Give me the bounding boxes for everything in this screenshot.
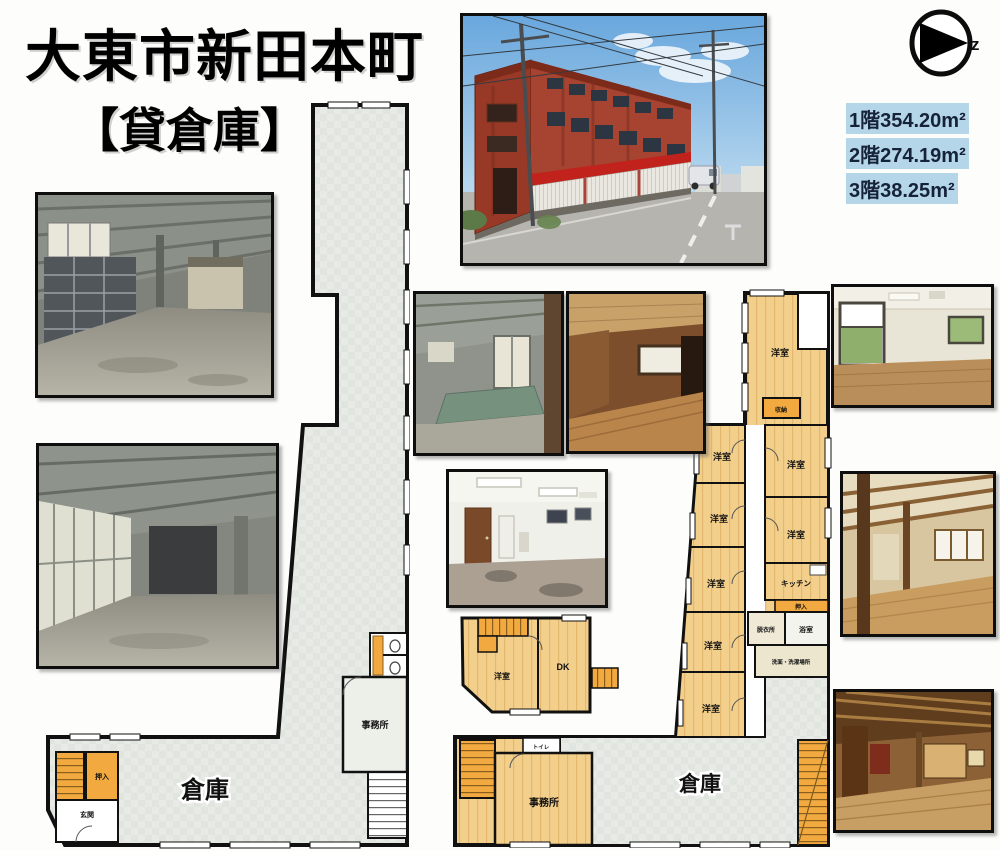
room-label-office-2f: 事務所 bbox=[529, 796, 559, 809]
photo-office-room bbox=[446, 469, 608, 608]
photo-warehouse-interior-3 bbox=[413, 291, 564, 456]
plan-1f-entry-block: 押入 玄関 bbox=[56, 752, 118, 842]
photo-exterior-building bbox=[460, 13, 767, 266]
north-arrow-icon: z bbox=[908, 6, 982, 82]
room-label-western-2: 洋室 bbox=[713, 451, 731, 462]
room-label-dk: DK bbox=[557, 662, 570, 672]
room-label-entrance: 玄関 bbox=[80, 810, 94, 819]
photo-wood-room bbox=[566, 291, 706, 454]
photo-warehouse-interior-1 bbox=[35, 192, 274, 398]
room-label-storage: 収納 bbox=[775, 406, 787, 414]
room-label-laundry: 洗面・洗濯場所 bbox=[772, 658, 811, 666]
plan-1f-toilet-block bbox=[370, 633, 407, 678]
floor-area-1f: 1階354.20m² bbox=[846, 103, 969, 134]
room-label-bath: 浴室 bbox=[799, 625, 813, 634]
photo-room-2f-a bbox=[831, 284, 994, 408]
plan-3f-stairs bbox=[478, 618, 528, 636]
photo-warehouse-interior-2 bbox=[36, 443, 279, 669]
floor-area-list: 1階354.20m² 2階274.19m² 3階38.25m² bbox=[846, 103, 969, 208]
room-label-kitchen: キッチン bbox=[781, 579, 811, 588]
room-label-western-7: 洋室 bbox=[787, 459, 805, 470]
room-label-warehouse-2f: 倉庫 bbox=[678, 772, 721, 796]
floor-area-2f: 2階274.19m² bbox=[846, 138, 969, 169]
room-label-warehouse-1f: 倉庫 bbox=[180, 776, 229, 804]
room-label-western-3: 洋室 bbox=[710, 513, 728, 524]
plan-1f-stairs-right bbox=[368, 772, 407, 838]
room-label-closet-1f: 押入 bbox=[95, 772, 109, 781]
plan-2f-corridor bbox=[745, 425, 765, 737]
room-label-closet-2f: 押入 bbox=[795, 603, 807, 611]
room-label-office-1f: 事務所 bbox=[361, 719, 388, 730]
plan-3f-ext-stairs bbox=[592, 668, 618, 688]
north-letter: z bbox=[971, 35, 980, 54]
floor-plan-3f: 洋室 DK bbox=[450, 608, 625, 720]
room-label-dressing: 脱衣所 bbox=[757, 626, 775, 634]
room-label-western-8: 洋室 bbox=[787, 529, 805, 540]
room-label-western-6: 洋室 bbox=[702, 703, 720, 714]
room-label-western-5: 洋室 bbox=[704, 640, 722, 651]
photo-room-2f-b bbox=[840, 471, 996, 637]
room-label-toilet: トイレ bbox=[533, 744, 550, 751]
plan-2f-notch bbox=[798, 293, 828, 349]
room-label-western-4: 洋室 bbox=[707, 578, 725, 589]
plan-1f-office: 事務所 bbox=[343, 677, 407, 772]
room-label-western-1: 洋室 bbox=[771, 347, 789, 358]
flyer-page: 大東市新田本町 【貸倉庫】 z 1階354.20m² 2階274.19m² 3階… bbox=[0, 0, 1000, 851]
room-label-western-3f: 洋室 bbox=[494, 671, 510, 681]
property-title: 大東市新田本町 bbox=[25, 12, 424, 93]
photo-attic-room bbox=[833, 689, 994, 833]
floor-area-3f: 3階38.25m² bbox=[846, 173, 958, 204]
